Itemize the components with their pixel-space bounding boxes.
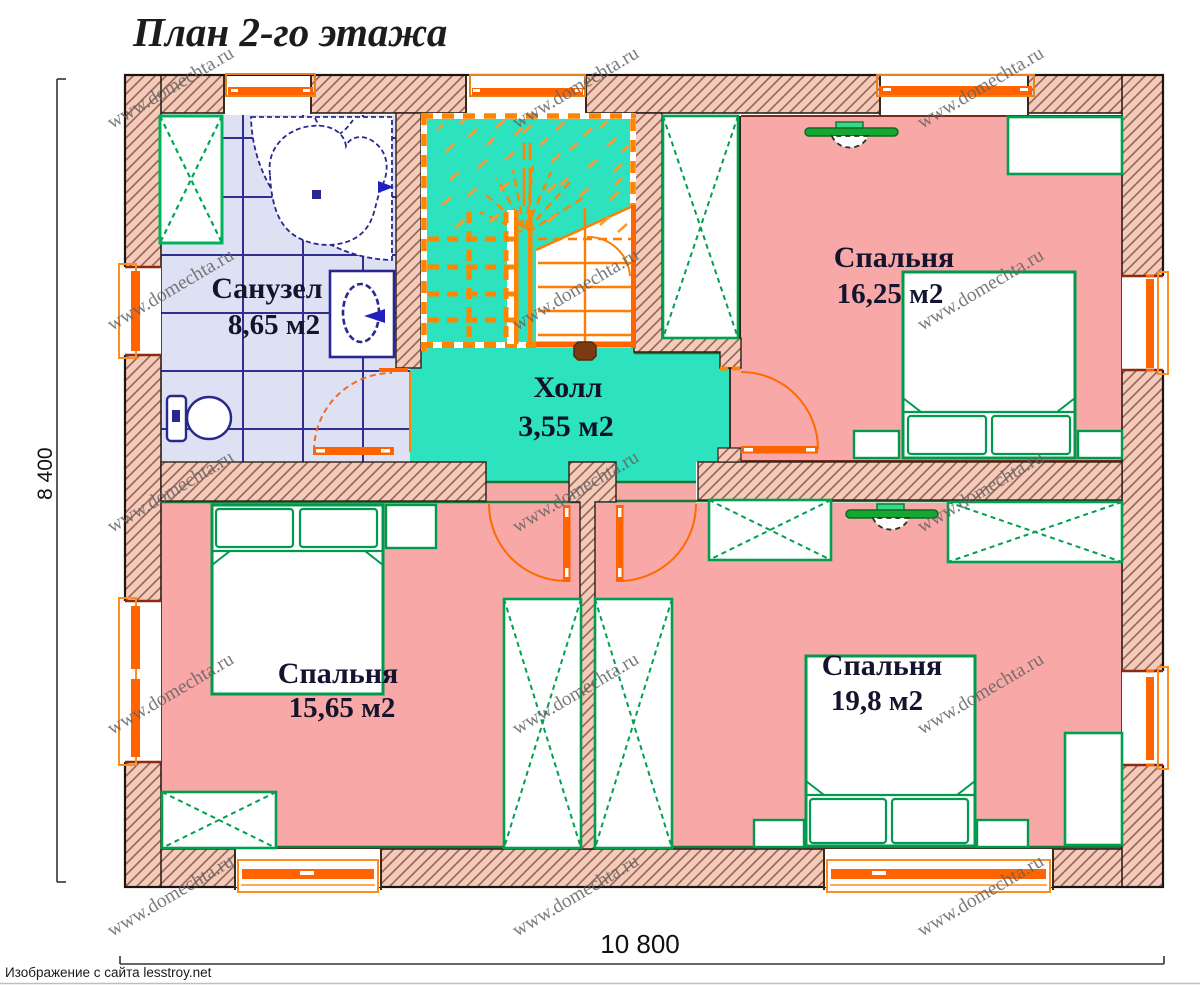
svg-text:10 800: 10 800 xyxy=(600,929,680,959)
svg-text:Холл: Холл xyxy=(533,371,602,404)
svg-text:3,55 м2: 3,55 м2 xyxy=(518,410,613,443)
svg-text:16,25 м2: 16,25 м2 xyxy=(837,278,944,310)
svg-text:19,8 м2: 19,8 м2 xyxy=(831,685,923,717)
svg-text:Спальня: Спальня xyxy=(834,241,954,274)
svg-text:8 400: 8 400 xyxy=(34,447,57,500)
svg-text:Спальня: Спальня xyxy=(822,649,942,682)
svg-text:15,65 м2: 15,65 м2 xyxy=(289,692,396,724)
svg-text:Санузел: Санузел xyxy=(211,272,322,305)
svg-text:8,65 м2: 8,65 м2 xyxy=(228,309,320,341)
svg-text:План 2-го этажа: План 2-го этажа xyxy=(132,9,447,55)
svg-text:Изображение с сайта lesstroy.n: Изображение с сайта lesstroy.net xyxy=(5,965,212,980)
svg-text:Спальня: Спальня xyxy=(278,657,398,690)
